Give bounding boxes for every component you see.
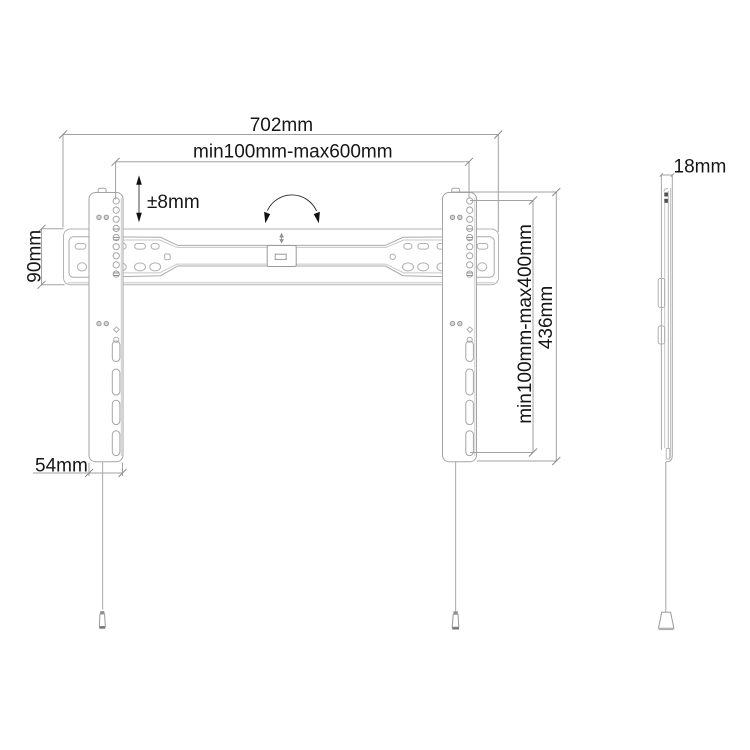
svg-text:min100mm-max400mm: min100mm-max400mm [515, 224, 536, 424]
svg-text:min100mm-max600mm: min100mm-max600mm [193, 142, 393, 163]
svg-text:18mm: 18mm [674, 157, 727, 178]
svg-text:±8mm: ±8mm [147, 192, 200, 213]
svg-text:90mm: 90mm [25, 230, 46, 283]
svg-text:54mm: 54mm [35, 456, 88, 477]
svg-text:436mm: 436mm [536, 286, 557, 349]
svg-text:702mm: 702mm [250, 115, 313, 136]
